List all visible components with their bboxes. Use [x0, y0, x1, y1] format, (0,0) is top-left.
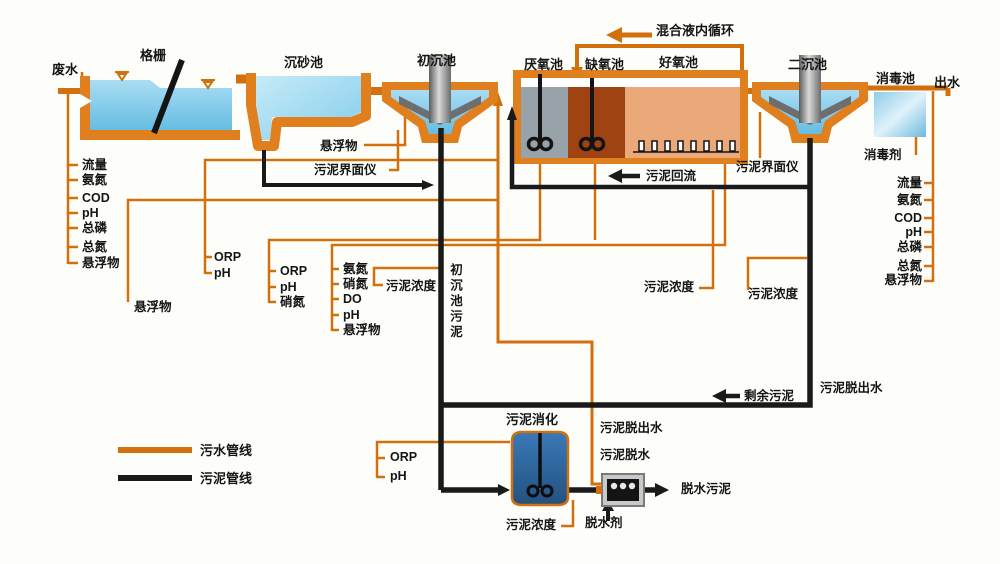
influent-sensor-item: 总磷: [82, 221, 107, 236]
influent-sensor-item: pH: [82, 206, 99, 221]
influent-sensor-item: 流量: [82, 158, 107, 173]
anoxic-sensor-item: pH: [280, 280, 297, 295]
excess-sludge-conc-label: 污泥浓度: [748, 287, 798, 302]
dewatered-sludge-label: 脱水污泥: [681, 482, 731, 497]
effluent-sensor-item: COD: [842, 211, 922, 226]
disinfection-tank: [874, 92, 926, 137]
dewatering-agent-label: 脱水剂: [585, 516, 623, 531]
recirculation-arrow-head: [606, 27, 622, 43]
disinfectant-label: 消毒剂: [864, 148, 902, 163]
aerobic-sensor-item: DO: [343, 292, 362, 307]
anoxic-zone: [568, 87, 625, 158]
sludge-dewatering-label: 污泥脱水: [600, 448, 650, 463]
effluent-label: 出水: [934, 75, 960, 90]
digester-label: 污泥消化: [506, 412, 558, 427]
filtrate-right-label: 污泥脱出水: [820, 381, 883, 396]
sludge-digester: [512, 432, 568, 505]
dewatered-arrow-head: [655, 483, 669, 497]
tank-primary-label: 初沉池: [417, 53, 456, 68]
excess-sludge-label: 剩余污泥: [744, 389, 794, 404]
excess-sludge-conc-line: [748, 258, 807, 290]
tank-anoxic-label: 缺氧池: [585, 57, 624, 72]
anoxic-sensor-item: 硝氮: [280, 295, 305, 310]
effluent-sensor-item: 总氮: [842, 259, 922, 274]
legend-sewage-label: 污水管线: [200, 443, 252, 458]
effluent-sensor-item: 总磷: [842, 240, 922, 255]
primary-interface-line: [389, 130, 398, 170]
primary-interface-label: 污泥界面仪: [314, 163, 377, 178]
aerobic-sensor-item: 悬浮物: [343, 323, 381, 338]
influent-sensor-item: 氨氮: [82, 173, 107, 188]
digester-conc-label: 污泥浓度: [506, 518, 556, 533]
aerobic-sensor-item: 硝氮: [343, 277, 368, 292]
process-flow-diagram: 废水 格栅 沉砂池 初沉池 厌氧池 缺氧池 好氧池 二沉池 消毒池 出水 混合液…: [0, 0, 1000, 564]
effluent-sensor-item: 氨氮: [842, 193, 922, 208]
anaerobic-sensor-item: pH: [214, 266, 231, 281]
sludge-return-label: 污泥回流: [646, 169, 696, 184]
anoxic-sensor-item: ORP: [280, 264, 307, 279]
influent-sensor-bracket: [68, 94, 78, 264]
influent-label: 废水: [52, 62, 78, 77]
primary-sludge-conc-label: 污泥浓度: [386, 279, 436, 294]
return-sludge-conc-line: [699, 190, 713, 288]
dewatering-device: [596, 474, 644, 506]
secondary-interface-label: 污泥界面仪: [736, 160, 799, 175]
tank-disinfection-label: 消毒池: [876, 71, 915, 86]
anaerobic-sensor-item: ORP: [214, 250, 241, 265]
recirculation-label: 混合液内循环: [656, 23, 734, 38]
digester-sensor-item: pH: [390, 469, 407, 484]
grit-ss-label: 悬浮物: [320, 139, 358, 154]
bio-tank: [513, 70, 748, 164]
digester-sensor-item: ORP: [390, 450, 417, 465]
influent-ss-label: 悬浮物: [134, 300, 172, 315]
influent-sensor-item: 悬浮物: [82, 256, 120, 271]
legend: [118, 450, 192, 478]
tank-screen-label: 格栅: [140, 48, 166, 63]
filtrate-mid-label: 污泥脱出水: [600, 421, 663, 436]
return-sludge-conc-label: 污泥浓度: [644, 280, 694, 295]
tank-anaerobic-label: 厌氧池: [524, 57, 563, 72]
effluent-sensor-item: 悬浮物: [842, 273, 922, 288]
excess-arrow-head: [712, 389, 726, 403]
screen-channel: [80, 60, 240, 140]
legend-sludge-label: 污泥管线: [200, 471, 252, 486]
effluent-sensor-item: pH: [842, 225, 922, 240]
aerobic-sensor-item: 氨氮: [343, 262, 368, 277]
tank-grit-label: 沉砂池: [284, 55, 323, 70]
grit-chamber: [251, 73, 366, 146]
influent-sensor-item: COD: [82, 191, 110, 206]
tank-secondary-label: 二沉池: [788, 57, 827, 72]
effluent-sensor-item: 流量: [842, 176, 922, 191]
influent-sensor-item: 总氮: [82, 240, 107, 255]
return-arrow-head: [608, 169, 622, 183]
aerobic-sensor-item: pH: [343, 308, 360, 323]
primary-sludge-label: 初沉池污泥: [447, 263, 463, 341]
tank-aerobic-label: 好氧池: [659, 55, 698, 70]
